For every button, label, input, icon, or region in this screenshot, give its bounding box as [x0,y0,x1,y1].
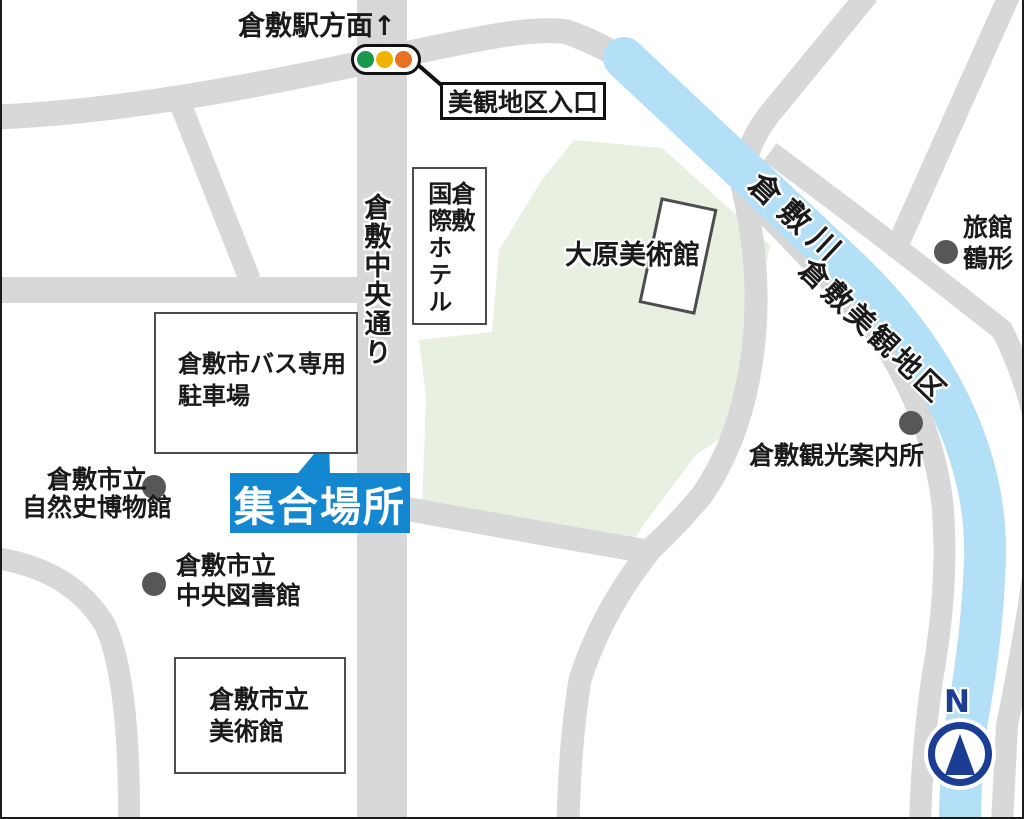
traffic-signal-icon [351,44,421,75]
city-art-museum-label-line2: 美術館 [209,717,284,747]
meeting-point-label: 集合場所 [234,473,406,533]
city-art-museum-label-line1: 倉敷市立 [209,685,309,715]
natural-history-museum-label: 倉敷市立 自然史博物館 [8,466,186,522]
bus-parking-label-line1: 倉敷市バス専用 [178,350,346,379]
meeting-point-label-box: 集合場所 [230,473,410,533]
road-southwest-curve [2,558,129,819]
central-library-label: 倉敷市立 中央図書館 [176,551,301,611]
kurashiki-access-map: 倉敷駅方面↑ 美観地区入口 倉敷中央通り 倉敷 国際ホテル 大原美術館 倉敷川 … [0,0,1024,819]
compass-north-label: N [944,684,970,721]
signal-orange-icon [395,51,412,68]
station-direction-label: 倉敷駅方面↑ [238,11,396,43]
road-west-diagonal-branch [178,98,250,280]
bikan-entrance-callout: 美観地区入口 [440,82,606,120]
tourist-information-dot [899,411,923,435]
signal-green-icon [357,51,374,68]
chuo-dori-street-label: 倉敷中央通り [358,193,390,367]
ryokan-tsurugata-label: 旅館 鶴形 [963,212,1013,274]
bikan-entrance-label: 美観地区入口 [448,83,598,119]
bus-parking-box: 倉敷市バス専用 駐車場 [154,312,358,454]
compass-north-icon [928,722,992,786]
road-top-right-diagonal [899,0,1010,242]
signal-yellow-icon [376,51,393,68]
ohara-museum-label: 大原美術館 [565,240,700,272]
kokusai-hotel-box: 倉敷 国際ホテル [412,167,487,325]
central-library-dot [142,572,166,596]
bus-parking-label-line2: 駐車場 [178,382,250,411]
kokusai-hotel-label-col2: 国際ホテル [423,181,452,316]
tourist-information-label: 倉敷観光案内所 [749,441,924,471]
ryokan-tsurugata-dot [934,240,958,264]
city-art-museum-box: 倉敷市立 美術館 [174,657,346,774]
compass-needle [945,734,975,775]
